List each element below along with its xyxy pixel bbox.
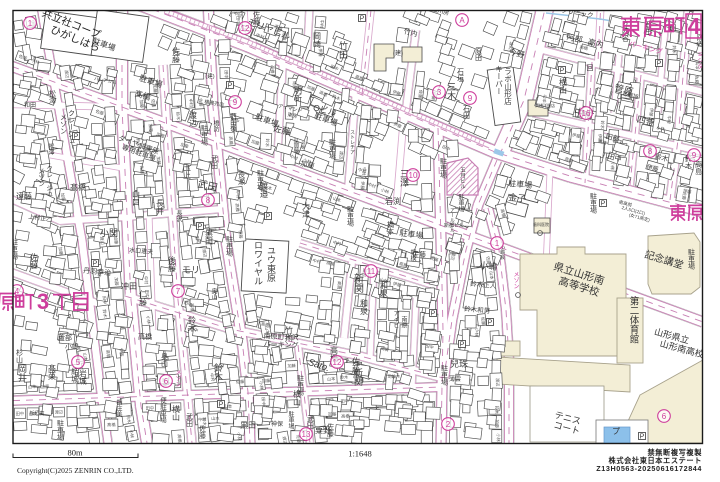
svg-text:高島: 高島 xyxy=(695,160,703,176)
svg-text:ストレチア: ストレチア xyxy=(349,130,355,155)
svg-text:竹川: 竹川 xyxy=(285,325,294,342)
svg-text:原田: 原田 xyxy=(475,47,483,62)
svg-text:和泉: 和泉 xyxy=(360,299,369,315)
svg-text:南原: 南原 xyxy=(400,315,407,328)
svg-text:ラボ山形店: ラボ山形店 xyxy=(503,67,512,106)
svg-text:岡井: 岡井 xyxy=(17,364,27,383)
svg-text:山本: 山本 xyxy=(224,403,233,410)
svg-text:新都ビル: 新都ビル xyxy=(444,222,464,229)
svg-text:高橋: 高橋 xyxy=(138,332,152,341)
svg-text:5: 5 xyxy=(76,358,81,367)
svg-text:6: 6 xyxy=(164,377,169,386)
svg-text:小嶋: 小嶋 xyxy=(65,342,79,351)
svg-text:山口: 山口 xyxy=(132,189,141,206)
svg-text:駐車場: 駐車場 xyxy=(57,419,65,442)
svg-text:駐車場: 駐車場 xyxy=(457,193,464,213)
svg-text:9: 9 xyxy=(468,94,473,103)
svg-text:佐藤: 佐藤 xyxy=(253,10,261,26)
svg-text:1: 1 xyxy=(28,19,33,28)
svg-text:横山: 横山 xyxy=(172,404,181,422)
svg-text:10: 10 xyxy=(409,171,418,180)
svg-text:田中: 田中 xyxy=(16,410,24,417)
svg-text:岩城: 岩城 xyxy=(78,368,87,386)
svg-text:P: P xyxy=(460,342,465,349)
svg-text:6: 6 xyxy=(662,412,667,421)
svg-text:80m: 80m xyxy=(67,448,83,458)
svg-text:16: 16 xyxy=(582,109,591,118)
svg-text:(建): (建) xyxy=(393,49,403,57)
svg-text:P: P xyxy=(657,61,662,68)
svg-text:岡崎: 岡崎 xyxy=(313,32,322,48)
svg-text:P: P xyxy=(93,261,98,268)
svg-text:冲田: 冲田 xyxy=(121,281,137,291)
svg-text:兒珠: 兒珠 xyxy=(450,358,468,369)
svg-text:竹田: 竹田 xyxy=(338,40,348,60)
svg-text:A: A xyxy=(459,16,465,25)
svg-text:2: 2 xyxy=(446,420,451,429)
svg-text:新関: 新関 xyxy=(352,272,364,294)
svg-text:メゾン: メゾン xyxy=(60,114,68,135)
svg-text:佐藤: 佐藤 xyxy=(199,424,207,440)
svg-text:歯科医院: 歯科医院 xyxy=(533,221,549,227)
svg-text:駐車場: 駐車場 xyxy=(226,235,234,258)
svg-text:Copyright(C)2025 ZENRIN CO.,L: Copyright(C)2025 ZENRIN CO.,LTD. xyxy=(17,466,134,475)
svg-text:P: P xyxy=(360,16,365,23)
svg-text:奥山: 奥山 xyxy=(210,287,217,301)
svg-text:石垣: 石垣 xyxy=(457,68,465,82)
svg-text:大津: 大津 xyxy=(302,201,311,219)
svg-text:駐車場: 駐車場 xyxy=(440,157,448,180)
svg-text:長瀬: 長瀬 xyxy=(238,171,246,186)
svg-text:1:1648: 1:1648 xyxy=(348,449,372,459)
svg-text:横山: 横山 xyxy=(293,389,302,407)
svg-text:P: P xyxy=(219,402,224,409)
svg-text:4: 4 xyxy=(688,13,701,39)
svg-text:横山: 横山 xyxy=(559,77,568,95)
svg-text:渡辺: 渡辺 xyxy=(189,110,198,128)
svg-text:橋防: 橋防 xyxy=(212,119,219,133)
svg-text:武田: 武田 xyxy=(186,412,194,428)
svg-text:鈴木: 鈴木 xyxy=(493,406,500,415)
svg-text:8: 8 xyxy=(206,196,211,205)
svg-text:アールビル: アールビル xyxy=(449,208,455,233)
svg-text:松澤: 松澤 xyxy=(47,142,54,156)
svg-text:遠藤: 遠藤 xyxy=(16,191,32,201)
svg-text:杉山: 杉山 xyxy=(16,348,24,364)
svg-text:蘆部: 蘆部 xyxy=(58,333,72,342)
svg-text:佐藤: 佐藤 xyxy=(30,252,39,270)
svg-text:佐藤: 佐藤 xyxy=(172,46,181,64)
svg-text:橋本: 橋本 xyxy=(387,220,395,236)
svg-text:相庄美: 相庄美 xyxy=(115,398,122,418)
svg-text:8: 8 xyxy=(648,147,653,156)
svg-text:メゾン: メゾン xyxy=(174,369,181,387)
svg-text:プ: プ xyxy=(612,427,620,436)
svg-text:玉上: 玉上 xyxy=(183,163,192,179)
svg-text:メゾン: メゾン xyxy=(512,271,519,289)
svg-text:4: 4 xyxy=(15,287,20,296)
svg-text:三木: 三木 xyxy=(446,82,456,101)
svg-text:アイビー: アイビー xyxy=(392,310,399,334)
svg-text:P: P xyxy=(74,134,79,141)
svg-text:五月ビル: 五月ビル xyxy=(459,167,466,190)
svg-text:駐車場: 駐車場 xyxy=(441,364,449,387)
svg-text:1: 1 xyxy=(495,239,500,248)
svg-text:11: 11 xyxy=(367,267,376,276)
svg-text:黒田: 黒田 xyxy=(205,229,214,246)
svg-text:髙菜: 髙菜 xyxy=(48,363,57,381)
svg-text:後藤: 後藤 xyxy=(168,255,177,273)
svg-text:駐車場: 駐車場 xyxy=(347,205,355,228)
svg-text:和田: 和田 xyxy=(24,101,36,109)
svg-text:武田: 武田 xyxy=(211,154,219,170)
svg-text:キーパー: キーパー xyxy=(494,65,503,95)
svg-text:髙橋: 髙橋 xyxy=(70,182,86,192)
svg-text:松澤: 松澤 xyxy=(49,89,57,105)
svg-text:(建): (建) xyxy=(205,72,214,80)
svg-text:12: 12 xyxy=(333,358,342,367)
svg-text:7: 7 xyxy=(176,287,181,296)
svg-text:回: 回 xyxy=(587,64,594,72)
svg-text:13: 13 xyxy=(302,430,311,439)
svg-text:駐車場: 駐車場 xyxy=(329,138,337,161)
svg-text:P: P xyxy=(198,224,203,231)
svg-text:石田: 石田 xyxy=(463,105,471,120)
svg-text:相模: 相模 xyxy=(409,248,416,262)
svg-text:神保: 神保 xyxy=(271,420,283,428)
svg-text:黒田: 黒田 xyxy=(240,421,256,430)
svg-text:駐車場: 駐車場 xyxy=(590,192,598,215)
svg-text:駐車場: 駐車場 xyxy=(257,169,265,192)
svg-text:P: P xyxy=(640,434,645,441)
svg-text:3: 3 xyxy=(437,88,442,97)
svg-text:駐車場: 駐車場 xyxy=(201,124,209,147)
svg-text:P: P xyxy=(601,201,606,208)
svg-text:駐車場: 駐車場 xyxy=(688,248,696,271)
svg-text:岩渕: 岩渕 xyxy=(385,196,401,206)
svg-text:ユウ東原: ユウ東原 xyxy=(266,246,276,282)
svg-text:田中: 田中 xyxy=(146,404,154,411)
svg-text:12: 12 xyxy=(241,24,250,33)
svg-text:P: P xyxy=(560,68,565,75)
svg-text:加藤: 加藤 xyxy=(328,411,337,418)
svg-text:Z13H0563-20250616172844: Z13H0563-20250616172844 xyxy=(596,464,702,473)
svg-text:9: 9 xyxy=(692,151,697,160)
svg-text:P: P xyxy=(488,320,493,327)
svg-text:薄雲: 薄雲 xyxy=(449,375,461,383)
svg-text:高橋: 高橋 xyxy=(341,413,350,420)
svg-text:駐車場: 駐車場 xyxy=(287,410,294,430)
svg-text:モリ: モリ xyxy=(182,265,200,275)
svg-text:P: P xyxy=(228,83,233,90)
svg-text:山本: 山本 xyxy=(29,410,38,417)
svg-text:長沢: 長沢 xyxy=(175,210,182,223)
svg-text:ロワイヤル: ロワイヤル xyxy=(253,241,263,286)
svg-text:9: 9 xyxy=(233,98,238,107)
svg-text:佐藤: 佐藤 xyxy=(327,422,335,438)
svg-text:P: P xyxy=(431,311,436,318)
svg-text:3: 3 xyxy=(37,289,49,314)
svg-text:小林: 小林 xyxy=(495,433,502,442)
svg-text:長井: 長井 xyxy=(156,199,165,216)
svg-text:駐車場: 駐車場 xyxy=(508,178,533,190)
svg-text:P: P xyxy=(266,214,271,221)
svg-text:齋藤: 齋藤 xyxy=(292,140,299,154)
svg-text:第二体育館: 第二体育館 xyxy=(628,296,640,345)
svg-text:金子: 金子 xyxy=(508,191,527,204)
